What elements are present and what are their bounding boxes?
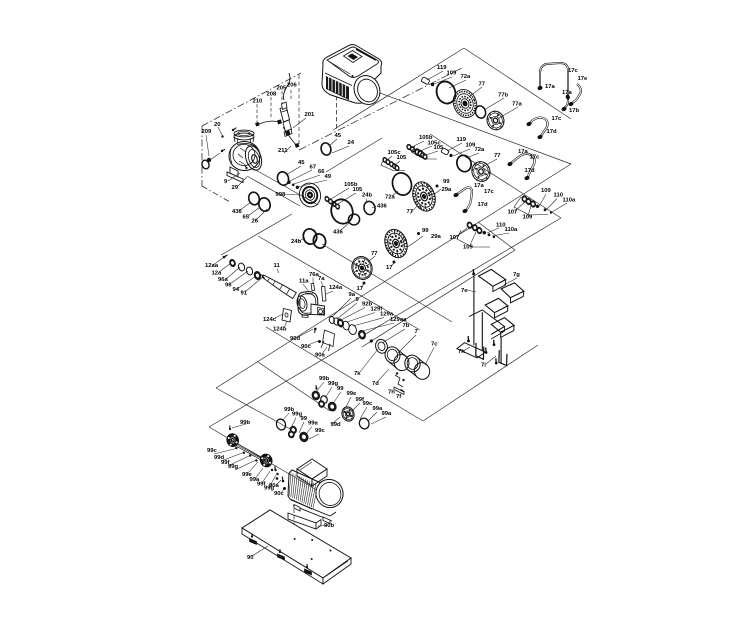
svg-text:7e: 7e: [461, 288, 468, 294]
svg-text:17d: 17d: [525, 168, 536, 174]
svg-text:17d: 17d: [478, 202, 489, 208]
svg-text:12aa: 12aa: [205, 263, 219, 269]
svg-text:11: 11: [274, 263, 281, 269]
svg-text:436: 436: [232, 209, 243, 215]
svg-text:99d: 99d: [331, 422, 342, 428]
svg-text:208: 208: [267, 92, 278, 98]
svg-text:77a: 77a: [512, 102, 523, 108]
svg-text:7h: 7h: [388, 390, 395, 396]
svg-text:17c: 17c: [530, 155, 541, 161]
svg-text:109: 109: [447, 71, 458, 77]
svg-text:29: 29: [232, 185, 239, 191]
svg-text:90d: 90d: [290, 336, 301, 342]
svg-text:99a: 99a: [382, 411, 393, 417]
svg-text:12a: 12a: [212, 271, 223, 277]
svg-text:7d: 7d: [372, 381, 379, 387]
svg-text:436: 436: [377, 204, 388, 210]
svg-text:7a: 7a: [318, 276, 325, 282]
svg-text:67: 67: [310, 165, 317, 171]
svg-text:107: 107: [450, 235, 461, 241]
svg-text:7f: 7f: [396, 394, 401, 400]
svg-text:7i: 7i: [481, 363, 486, 369]
svg-text:7b: 7b: [403, 323, 410, 329]
svg-text:17b: 17b: [569, 108, 580, 114]
svg-text:45: 45: [335, 133, 342, 139]
svg-text:45: 45: [298, 160, 305, 166]
svg-text:105: 105: [397, 155, 408, 161]
svg-text:99: 99: [301, 416, 308, 422]
svg-text:17a: 17a: [518, 149, 529, 155]
svg-text:90: 90: [247, 555, 254, 561]
svg-text:201: 201: [305, 112, 316, 118]
svg-text:17e: 17e: [578, 76, 589, 82]
svg-text:24b: 24b: [291, 239, 302, 245]
svg-text:99: 99: [337, 386, 344, 392]
svg-text:26: 26: [252, 219, 259, 225]
svg-text:17a: 17a: [474, 183, 485, 189]
svg-text:109: 109: [523, 215, 534, 221]
svg-text:109: 109: [463, 245, 474, 251]
svg-text:124b: 124b: [273, 327, 287, 333]
svg-text:206: 206: [287, 83, 298, 89]
svg-text:209: 209: [202, 129, 213, 135]
svg-text:24: 24: [348, 140, 355, 146]
svg-text:90b: 90b: [324, 523, 335, 529]
svg-text:17a: 17a: [545, 84, 556, 90]
svg-text:109: 109: [541, 188, 552, 194]
svg-text:99: 99: [443, 179, 450, 185]
svg-text:210: 210: [253, 99, 264, 105]
svg-text:99c: 99c: [315, 428, 326, 434]
svg-text:17: 17: [386, 265, 393, 271]
svg-text:99c: 99c: [207, 448, 218, 454]
svg-text:11a: 11a: [299, 279, 309, 285]
svg-text:72a: 72a: [475, 147, 486, 153]
svg-text:7c: 7c: [431, 342, 438, 348]
svg-text:72a: 72a: [385, 195, 396, 201]
svg-text:436: 436: [333, 230, 344, 236]
svg-text:72a: 72a: [461, 74, 472, 80]
svg-text:29a: 29a: [442, 187, 453, 193]
svg-text:90a: 90a: [269, 483, 280, 489]
svg-text:124a: 124a: [329, 285, 343, 291]
svg-text:7g: 7g: [513, 272, 520, 278]
svg-text:29a: 29a: [431, 234, 442, 240]
svg-text:91: 91: [241, 291, 248, 297]
svg-text:99: 99: [422, 228, 429, 234]
svg-text:7h: 7h: [458, 349, 465, 355]
svg-text:110a: 110a: [505, 227, 519, 233]
svg-text:17: 17: [357, 286, 364, 292]
svg-text:49: 49: [325, 174, 332, 180]
svg-text:90c: 90c: [301, 344, 312, 350]
svg-text:99a: 99a: [308, 421, 319, 427]
svg-text:107: 107: [508, 210, 519, 216]
svg-text:17c: 17c: [552, 116, 563, 122]
svg-text:77b: 77b: [498, 93, 509, 99]
svg-text:20: 20: [214, 122, 221, 128]
svg-text:90a: 90a: [315, 353, 326, 359]
svg-text:17d: 17d: [547, 129, 558, 135]
svg-text:24b: 24b: [362, 193, 373, 199]
svg-text:77: 77: [494, 153, 501, 159]
svg-text:17a: 17a: [562, 90, 573, 96]
svg-text:110a: 110a: [563, 198, 577, 204]
svg-text:99g: 99g: [228, 464, 239, 470]
svg-text:17c: 17c: [568, 68, 579, 74]
svg-text:205: 205: [277, 86, 288, 92]
svg-text:90c: 90c: [274, 491, 285, 497]
svg-text:17c: 17c: [484, 189, 495, 195]
svg-text:998: 998: [276, 192, 287, 198]
svg-text:99c: 99c: [363, 401, 374, 407]
svg-text:77: 77: [479, 82, 486, 88]
svg-text:211: 211: [278, 148, 288, 154]
